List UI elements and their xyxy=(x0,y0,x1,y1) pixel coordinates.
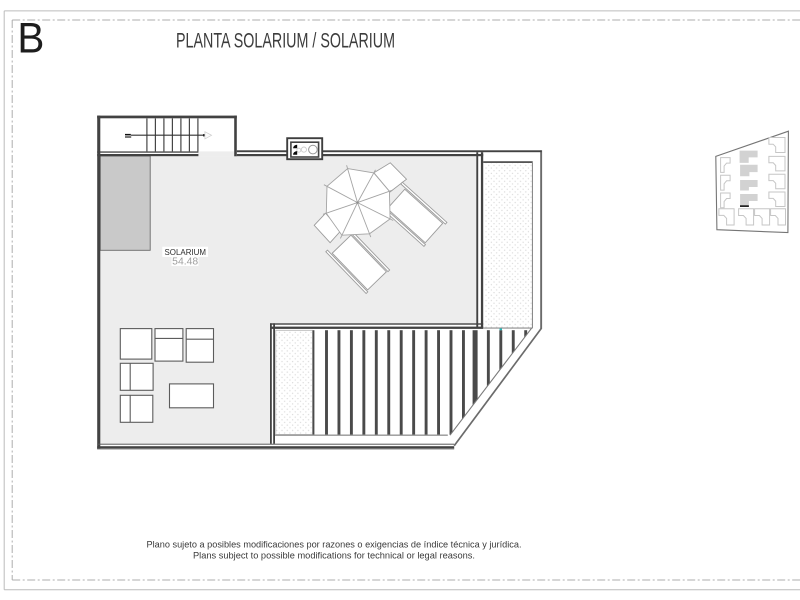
svg-text:Plano sujeto a posibles modifi: Plano sujeto a posibles modificaciones p… xyxy=(147,539,522,549)
svg-text:54.48: 54.48 xyxy=(172,257,199,268)
svg-text:Plans subject to possible modi: Plans subject to possible modifications … xyxy=(193,551,475,561)
svg-text:B: B xyxy=(17,15,44,62)
svg-text:PLANTA SOLARIUM / SOLARIUM: PLANTA SOLARIUM / SOLARIUM xyxy=(176,29,395,52)
